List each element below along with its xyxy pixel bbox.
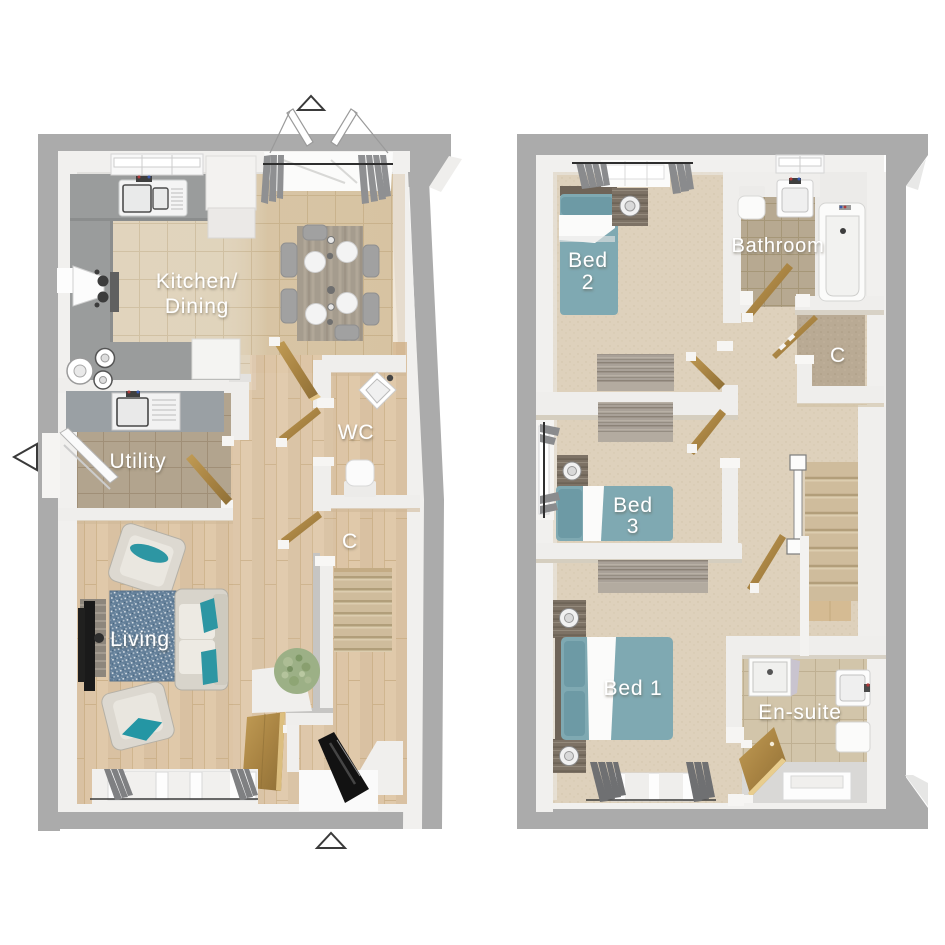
svg-text:Dining: Dining: [165, 295, 229, 318]
svg-text:3: 3: [627, 515, 639, 538]
svg-text:Bathroom: Bathroom: [731, 235, 824, 257]
svg-text:Bed: Bed: [613, 494, 653, 517]
svg-text:WC: WC: [338, 421, 375, 444]
svg-text:Living: Living: [110, 628, 170, 651]
svg-text:Utility: Utility: [110, 450, 167, 473]
svg-text:Bed 1: Bed 1: [604, 677, 663, 700]
svg-text:Bed: Bed: [568, 249, 608, 272]
svg-text:C: C: [342, 530, 358, 553]
svg-text:C: C: [830, 344, 846, 367]
svg-text:En-suite: En-suite: [758, 701, 841, 724]
svg-text:Kitchen/: Kitchen/: [156, 270, 238, 293]
svg-text:2: 2: [582, 271, 594, 294]
